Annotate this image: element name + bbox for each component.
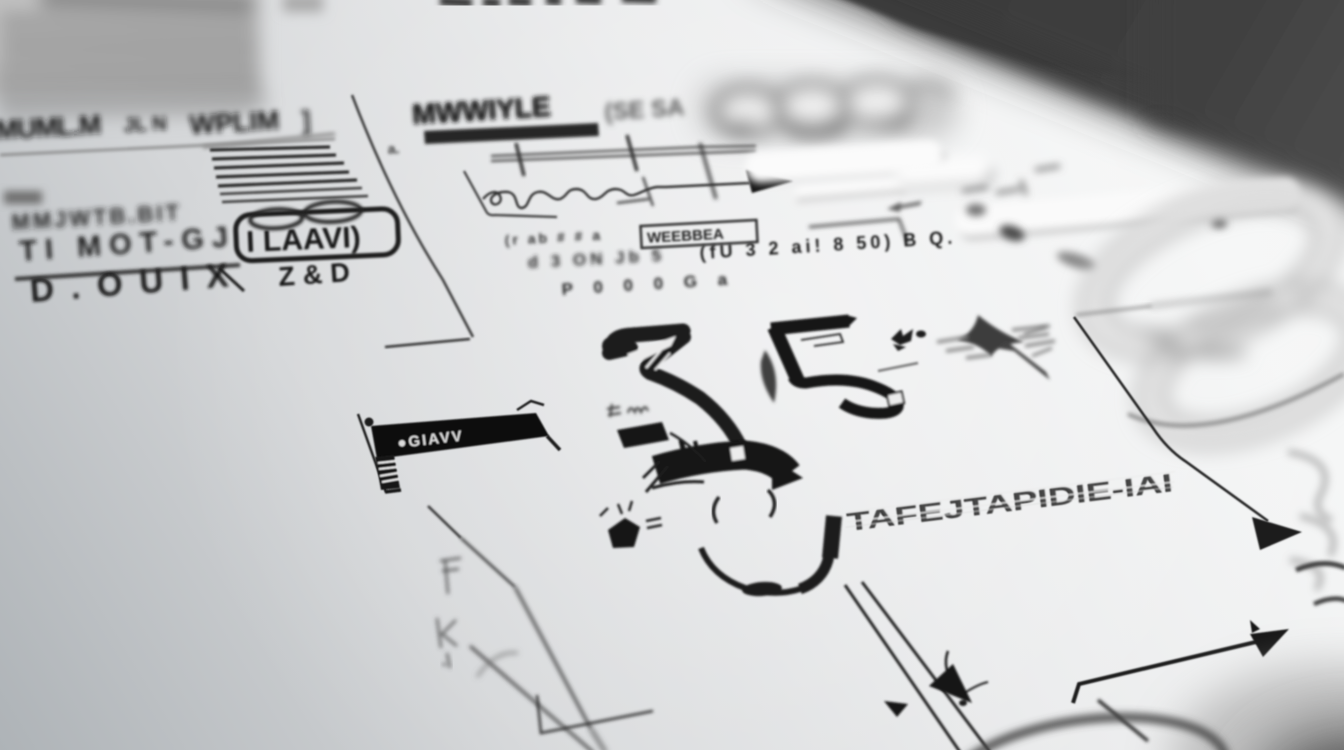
svg-text:WPLIM: WPLIM: [189, 105, 280, 140]
svg-text:JL N: JL N: [123, 113, 167, 137]
svg-text:MUML.M: MUML.M: [0, 110, 101, 145]
svg-text:]: ]: [301, 106, 312, 136]
svg-text:(SE SA: (SE SA: [604, 94, 686, 126]
svg-text:a.: a.: [387, 140, 400, 157]
svg-text:Z&D: Z&D: [277, 257, 358, 292]
